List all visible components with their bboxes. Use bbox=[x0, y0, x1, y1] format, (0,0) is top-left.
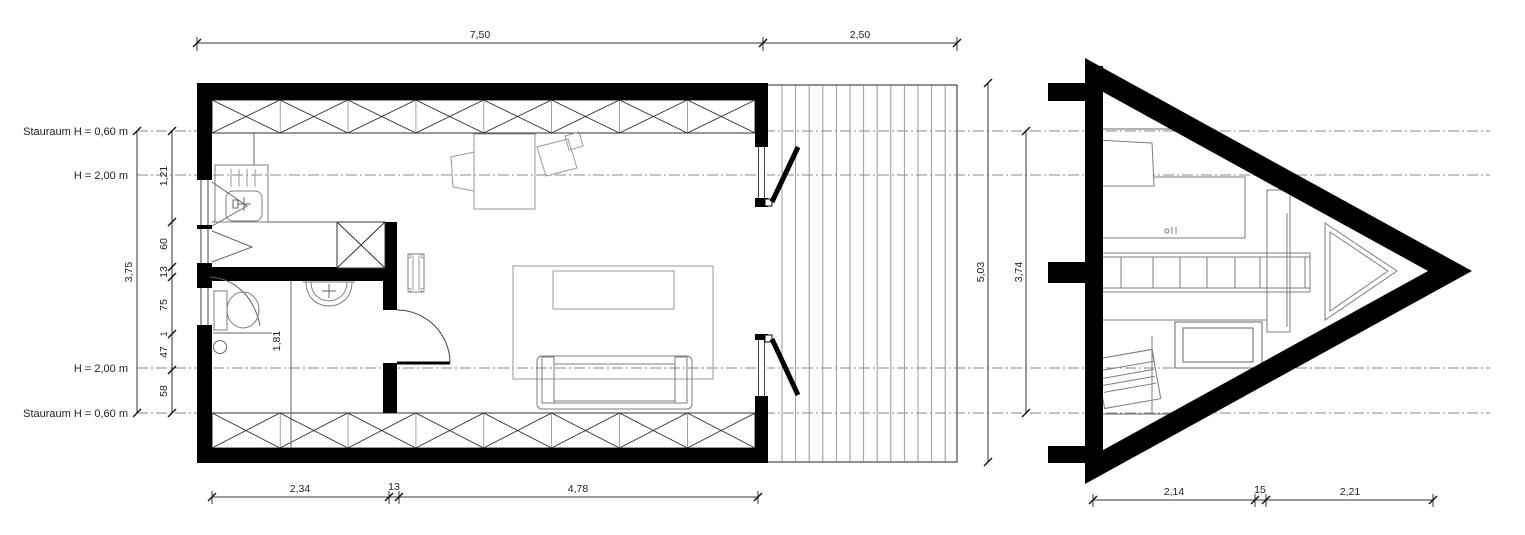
armchair bbox=[1096, 349, 1161, 408]
dim-top: 7,50 2,50 bbox=[193, 29, 961, 51]
dim-right-inner: 3,74 bbox=[1013, 127, 1030, 417]
dim-bottom-2: 13 bbox=[388, 481, 400, 493]
aframe-stub-bottom bbox=[1048, 446, 1085, 463]
aframe-roof-bottom bbox=[1085, 271, 1472, 484]
skylight bbox=[1175, 322, 1262, 368]
dim-right-inner-label: 3,74 bbox=[1013, 262, 1025, 283]
window-right-upper bbox=[756, 147, 767, 198]
pillow bbox=[1097, 140, 1154, 186]
deck bbox=[763, 85, 957, 462]
storage-band-top bbox=[212, 100, 755, 133]
label-height-top: H = 2,00 m bbox=[74, 170, 128, 182]
window-bathroom bbox=[198, 288, 211, 325]
wall-left-seg bbox=[197, 263, 212, 288]
label-bath-width: 1,81 bbox=[271, 331, 283, 352]
dim-bottom-1: 2,34 bbox=[290, 483, 311, 495]
dim-chain-1: 1,21 bbox=[158, 166, 170, 187]
aframe-stub-top bbox=[1048, 83, 1085, 101]
dim-chain-2: 60 bbox=[158, 238, 170, 250]
window-kitchen-2 bbox=[198, 229, 211, 263]
dim-chain-5: 1 bbox=[159, 331, 169, 336]
dim-aframe-3: 2,21 bbox=[1340, 486, 1361, 498]
dim-chain-3: 13 bbox=[158, 266, 170, 278]
ladder bbox=[1098, 253, 1310, 292]
wall-left-seg bbox=[197, 325, 212, 463]
dim-bottom-3: 4,78 bbox=[568, 483, 589, 495]
window-right-lower bbox=[756, 340, 767, 396]
wall-bathroom-right-lower bbox=[383, 363, 397, 413]
wall-bathroom-top bbox=[212, 267, 397, 281]
dim-left-chain: 1,21 60 13 75 1 47 58 bbox=[158, 127, 176, 417]
dim-bottom: 2,34 13 4,78 bbox=[208, 481, 762, 504]
wall-left-seg bbox=[197, 83, 212, 180]
aframe-left-wall bbox=[1085, 66, 1103, 470]
label-stauraum-bottom: Stauraum H = 0,60 m bbox=[23, 408, 128, 420]
dim-aframe-2: 15 bbox=[1254, 484, 1266, 496]
dim-right-overall: 5,03 bbox=[975, 79, 992, 466]
aframe-stub-middle bbox=[1048, 262, 1085, 283]
wall-left-mullion bbox=[197, 225, 212, 229]
label-stauraum-top: Stauraum H = 0,60 m bbox=[23, 126, 128, 138]
storage-band-bottom bbox=[212, 413, 755, 448]
dim-chain-4: 75 bbox=[158, 299, 170, 311]
dim-chain-6: 47 bbox=[158, 346, 170, 358]
dim-left-overall-label: 3,75 bbox=[123, 262, 135, 283]
label-height-bottom: H = 2,00 m bbox=[74, 363, 128, 375]
wall-top bbox=[197, 83, 763, 100]
deck-planks bbox=[769, 86, 956, 461]
dim-chain-7: 58 bbox=[158, 385, 170, 397]
dim-deck-width: 2,50 bbox=[850, 29, 871, 41]
dim-aframe-bottom: 2,14 15 2,21 bbox=[1089, 484, 1437, 507]
aframe-plan bbox=[1048, 58, 1472, 484]
floor-plan-sheet: 7,50 2,50 2,34 13 4,78 3,75 1,21 bbox=[0, 0, 1525, 535]
wall-bottom bbox=[197, 448, 763, 463]
dim-plan-width: 7,50 bbox=[470, 29, 491, 41]
floor-plan-drawing: 7,50 2,50 2,34 13 4,78 3,75 1,21 bbox=[0, 0, 1525, 535]
wall-right-seg bbox=[755, 396, 768, 463]
closet-column bbox=[337, 222, 385, 268]
window-kitchen-1 bbox=[198, 180, 211, 225]
dim-aframe-1: 2,14 bbox=[1164, 486, 1185, 498]
dim-right-overall-label: 5,03 bbox=[975, 262, 987, 283]
wall-right-seg bbox=[755, 83, 768, 147]
outlet-symbol bbox=[1165, 227, 1176, 234]
